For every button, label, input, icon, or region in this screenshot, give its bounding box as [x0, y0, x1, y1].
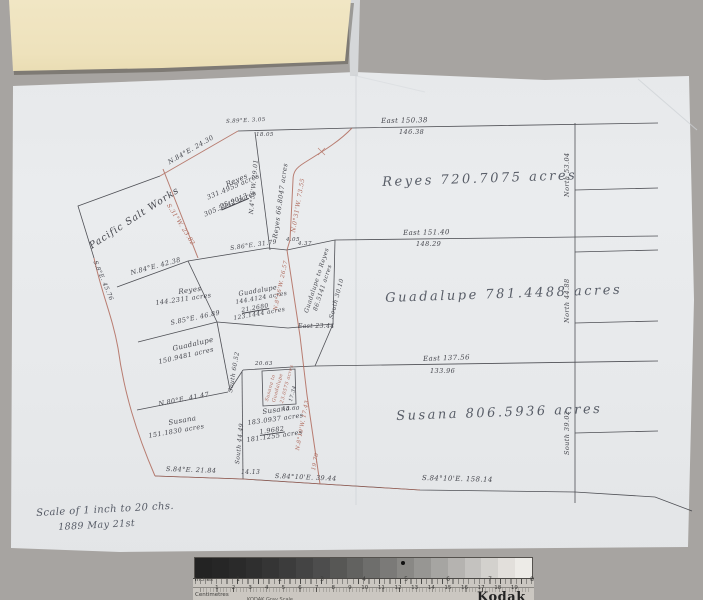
grayscale-step [279, 558, 296, 578]
cm-number: 13 [402, 585, 419, 591]
cm-number: 11 [368, 585, 385, 591]
grayscale-step [246, 558, 263, 578]
inch-number: 7 [450, 576, 492, 583]
grayscale-step [330, 558, 347, 578]
label-13-60: 13.60 [282, 407, 300, 413]
label-20-63: 20.63 [255, 362, 273, 368]
grayscale-step [212, 558, 229, 578]
ruler-inch-numbers: 12345678 [198, 576, 534, 583]
cm-number: 12 [385, 585, 402, 591]
grayscale-step [313, 558, 330, 578]
grayscale-step [397, 558, 414, 578]
grayscale-step [363, 558, 380, 578]
label-18-05: 18.05 [256, 133, 274, 139]
grayscale-step [515, 558, 532, 578]
inch-number: 5 [366, 576, 408, 583]
label-south-39-02: South 39.02 [564, 411, 571, 455]
label-east-150-38: East 150.38 [381, 117, 428, 125]
inch-number: 3 [282, 576, 324, 583]
label-east-23-44: East 23.44 [298, 324, 335, 330]
label-4-37: 4.37 [298, 242, 312, 248]
cm-number: 10 [352, 585, 369, 591]
cm-number: 6 [285, 585, 302, 591]
grayscale-step [380, 558, 397, 578]
inch-number: 4 [324, 576, 366, 583]
ruler-cm-numbers: 12345678910111213141516171819 [202, 585, 518, 591]
grayscale-step [465, 558, 482, 578]
cm-number: 2 [219, 585, 236, 591]
grayscale-step [296, 558, 313, 578]
label-14-13: 14.13 [241, 470, 260, 476]
label-north-44-88: North 44.88 [564, 278, 571, 323]
grayscale-step [481, 558, 498, 578]
cm-number: 8 [318, 585, 335, 591]
ruler-centimetres-label: Centimetres [195, 592, 229, 598]
grayscale-step [347, 558, 364, 578]
grayscale-step [431, 558, 448, 578]
inch-number: 1 [198, 576, 240, 583]
label-east-151-40: East 151.40 [403, 229, 450, 237]
grayscale-step [498, 558, 515, 578]
cm-number: 14 [418, 585, 435, 591]
label-133-96: 133.96 [430, 368, 455, 375]
cm-number: 5 [269, 585, 286, 591]
cm-number: 3 [235, 585, 252, 591]
cm-number: 16 [451, 585, 468, 591]
cm-number: 7 [302, 585, 319, 591]
inch-number: 6 [408, 576, 450, 583]
cm-number: 1 [202, 585, 219, 591]
label-s84e-21-84: S.84°E. 21.84 [166, 466, 217, 474]
inch-number: 8 [492, 576, 534, 583]
label-north-53-04: North 53.04 [564, 152, 571, 197]
grayscale-step [448, 558, 465, 578]
grayscale-step [195, 558, 212, 578]
kodak-gray-scale-wedge [195, 558, 532, 578]
grayscale-step [262, 558, 279, 578]
cm-number: 9 [335, 585, 352, 591]
cm-number: 4 [252, 585, 269, 591]
kodak-brand-label: Kodak [477, 590, 526, 600]
photographed-survey-map: Reyes 720.7075 acres Guadalupe 781.4488 … [0, 0, 703, 600]
inch-number: 2 [240, 576, 282, 583]
cm-number: 15 [435, 585, 452, 591]
label-148-29: 148.29 [416, 241, 441, 248]
label-146-38: 146.38 [399, 129, 424, 136]
grayscale-step [414, 558, 431, 578]
registration-dot [401, 561, 405, 565]
grayscale-step [229, 558, 246, 578]
